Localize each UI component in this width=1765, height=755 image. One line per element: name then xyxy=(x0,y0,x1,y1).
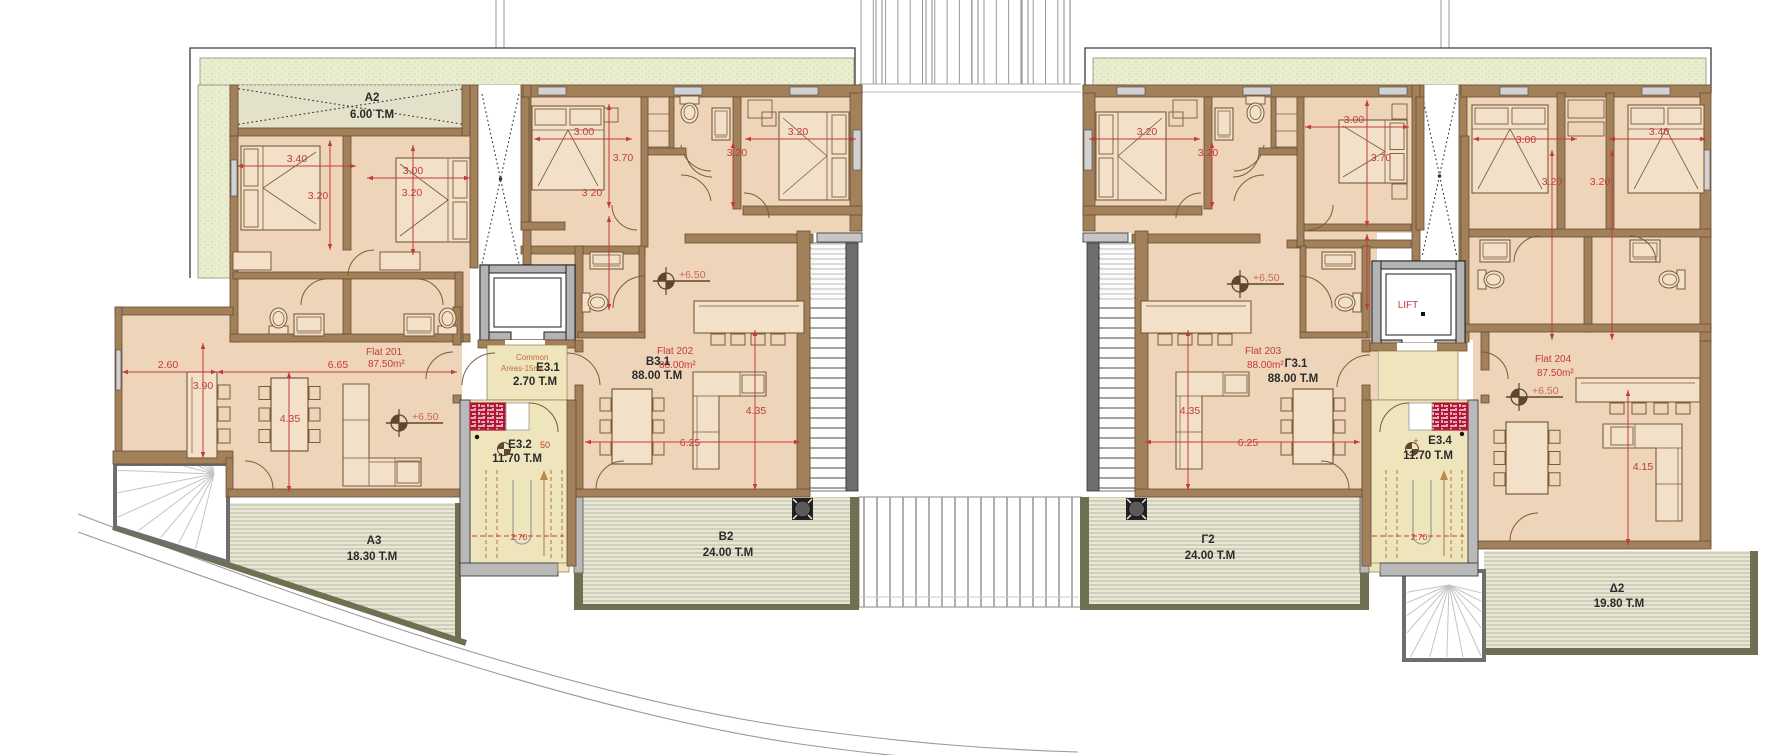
svg-text:19.80 T.M: 19.80 T.M xyxy=(1594,598,1645,610)
svg-text:E3.2: E3.2 xyxy=(508,439,532,451)
svg-text:4.35: 4.35 xyxy=(280,413,301,425)
svg-text:LIFT: LIFT xyxy=(1398,300,1419,311)
svg-text:Common: Common xyxy=(516,353,548,362)
svg-text:E3.1: E3.1 xyxy=(536,362,560,374)
svg-text:3.20: 3.20 xyxy=(1590,176,1611,188)
svg-text:A3: A3 xyxy=(367,535,382,547)
svg-text:11.70 T.M: 11.70 T.M xyxy=(492,453,542,465)
svg-text:3.00: 3.00 xyxy=(574,126,595,138)
svg-text:11.70 T.M: 11.70 T.M xyxy=(1403,450,1453,462)
svg-text:Flat 203: Flat 203 xyxy=(1245,346,1282,357)
svg-text:3.20: 3.20 xyxy=(402,187,423,199)
svg-text:A2: A2 xyxy=(365,92,380,104)
svg-text:4.35: 4.35 xyxy=(1180,405,1201,417)
svg-text:2.70 T.M: 2.70 T.M xyxy=(513,376,557,388)
svg-text:Γ2: Γ2 xyxy=(1201,534,1214,546)
svg-text:3 20: 3 20 xyxy=(582,187,603,199)
svg-text:50: 50 xyxy=(540,440,550,450)
svg-text:3.20: 3.20 xyxy=(727,147,748,159)
svg-text:3.70: 3.70 xyxy=(613,152,634,164)
svg-text:18.30 T.M: 18.30 T.M xyxy=(347,551,398,563)
svg-text:B2: B2 xyxy=(719,531,734,543)
svg-text:4.15: 4.15 xyxy=(1633,461,1654,473)
svg-text:3.20: 3.20 xyxy=(1542,176,1563,188)
svg-text:3.20: 3.20 xyxy=(1137,126,1158,138)
svg-text:24.00 T.M: 24.00 T.M xyxy=(703,547,754,559)
svg-text:+: + xyxy=(1413,436,1418,446)
svg-text:3.20: 3.20 xyxy=(1198,147,1219,159)
svg-text:6.65: 6.65 xyxy=(328,359,349,371)
svg-text:Flat 204: Flat 204 xyxy=(1535,354,1572,365)
svg-text:+6.50: +6.50 xyxy=(1532,385,1559,397)
svg-text:2.60: 2.60 xyxy=(158,359,179,371)
svg-text:3.90: 3.90 xyxy=(193,380,214,392)
svg-text:3.70: 3.70 xyxy=(1371,152,1392,164)
svg-text:6.00 T.M: 6.00 T.M xyxy=(350,109,394,121)
svg-text:Δ2: Δ2 xyxy=(1610,583,1625,595)
svg-text:88.00 T.M: 88.00 T.M xyxy=(1268,373,1319,385)
svg-text:4.35: 4.35 xyxy=(746,405,767,417)
svg-text:87.50m²: 87.50m² xyxy=(368,359,405,370)
svg-text:+6.50: +6.50 xyxy=(679,269,706,281)
svg-text:3.20: 3.20 xyxy=(788,126,809,138)
svg-text:3.40: 3.40 xyxy=(287,153,308,165)
svg-text:6.25: 6.25 xyxy=(680,437,701,449)
svg-text:2.70: 2.70 xyxy=(511,532,528,542)
svg-text:3.20: 3.20 xyxy=(308,190,329,202)
svg-text:3.00: 3.00 xyxy=(1344,114,1365,126)
svg-text:Flat 201: Flat 201 xyxy=(366,347,403,358)
svg-text:87.50m²: 87.50m² xyxy=(1537,368,1574,379)
svg-text:88.00m²: 88.00m² xyxy=(1247,360,1284,371)
svg-text:6.25: 6.25 xyxy=(1238,437,1259,449)
svg-text:B3.1: B3.1 xyxy=(646,356,671,368)
svg-text:+6.50: +6.50 xyxy=(1253,272,1280,284)
svg-text:Γ3.1: Γ3.1 xyxy=(1285,358,1309,370)
svg-text:88.00 T.M: 88.00 T.M xyxy=(632,370,683,382)
svg-text:+6.50: +6.50 xyxy=(412,411,439,423)
svg-text:3.00: 3.00 xyxy=(1516,134,1537,146)
svg-text:3.40: 3.40 xyxy=(1649,126,1670,138)
svg-text:24.00 T.M: 24.00 T.M xyxy=(1185,550,1236,562)
svg-text:2.70: 2.70 xyxy=(1411,532,1428,542)
svg-text:E3.4: E3.4 xyxy=(1428,435,1452,447)
